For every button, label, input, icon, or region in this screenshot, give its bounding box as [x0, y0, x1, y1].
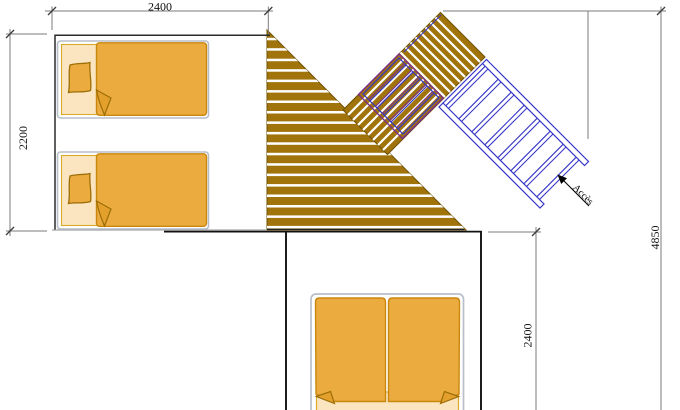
svg-text:4850: 4850	[648, 226, 662, 250]
svg-text:2400: 2400	[148, 0, 172, 14]
svg-text:2400: 2400	[521, 324, 535, 348]
svg-text:2200: 2200	[16, 126, 30, 150]
